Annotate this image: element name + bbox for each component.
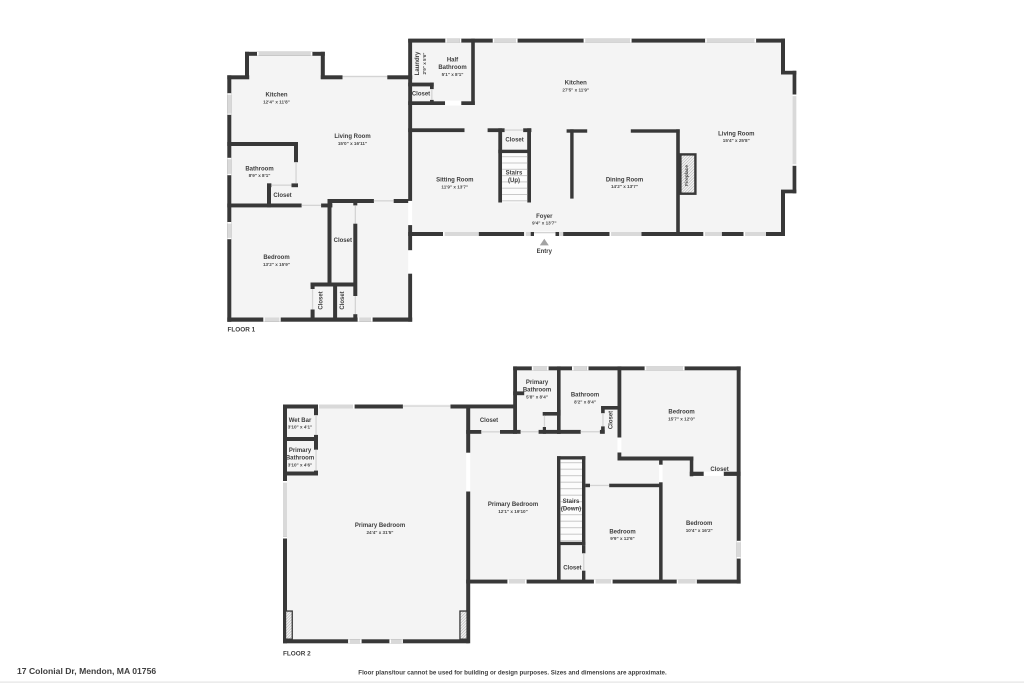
svg-text:Half: Half	[447, 58, 459, 64]
svg-text:Bedroom: Bedroom	[609, 530, 635, 536]
svg-text:5'1" x 8'1": 5'1" x 8'1"	[442, 72, 464, 77]
svg-text:2'9" x 5'6": 2'9" x 5'6"	[422, 53, 427, 75]
svg-text:Closet: Closet	[273, 193, 291, 199]
svg-text:Bedroom: Bedroom	[668, 410, 694, 416]
svg-text:Floor plans/tour cannot be use: Floor plans/tour cannot be used for buil…	[358, 670, 667, 677]
svg-text:Sitting Room: Sitting Room	[436, 178, 473, 184]
svg-text:Closet: Closet	[563, 566, 581, 572]
svg-text:(Up): (Up)	[508, 178, 520, 184]
svg-text:9'4" x 13'7": 9'4" x 13'7"	[532, 221, 556, 226]
svg-text:15'0" x 16'11": 15'0" x 16'11"	[338, 141, 367, 146]
svg-text:Closet: Closet	[340, 291, 346, 309]
svg-text:10'4" x 16'2": 10'4" x 16'2"	[686, 528, 713, 533]
svg-text:FLOOR 1: FLOOR 1	[228, 327, 256, 334]
svg-text:Living Room: Living Room	[334, 134, 370, 140]
svg-text:15'7" x 12'0": 15'7" x 12'0"	[668, 417, 695, 422]
svg-text:Primary: Primary	[289, 448, 312, 454]
svg-text:17 Colonial Dr, Mendon, MA 017: 17 Colonial Dr, Mendon, MA 01756	[17, 666, 156, 676]
svg-text:12'1" x 19'10": 12'1" x 19'10"	[498, 509, 528, 514]
svg-text:FLOOR 2: FLOOR 2	[283, 651, 311, 658]
svg-text:Bedroom: Bedroom	[263, 255, 289, 261]
svg-text:11'9" x 13'7": 11'9" x 13'7"	[441, 185, 468, 190]
svg-text:Closet: Closet	[505, 138, 523, 144]
svg-text:12'4" x 11'8": 12'4" x 11'8"	[263, 100, 290, 105]
svg-text:Closet: Closet	[609, 411, 615, 429]
svg-text:27'5" x 11'9": 27'5" x 11'9"	[562, 88, 589, 93]
svg-text:3'10" x 4'1": 3'10" x 4'1"	[288, 425, 312, 430]
svg-text:Primary Bedroom: Primary Bedroom	[488, 502, 538, 508]
svg-text:Living Room: Living Room	[718, 131, 754, 137]
svg-text:Entry: Entry	[537, 249, 553, 255]
svg-text:Wet Bar: Wet Bar	[289, 418, 312, 424]
svg-text:Bathroom: Bathroom	[571, 393, 599, 399]
svg-text:Closet: Closet	[710, 467, 728, 473]
svg-text:3'10" x 4'6": 3'10" x 4'6"	[288, 463, 312, 468]
svg-text:Bedroom: Bedroom	[686, 521, 712, 527]
svg-text:15'4" x 25'8": 15'4" x 25'8"	[723, 138, 750, 143]
svg-text:Primary: Primary	[526, 380, 549, 386]
svg-text:Stairs: Stairs	[563, 499, 580, 505]
svg-text:8'2" x 8'4": 8'2" x 8'4"	[574, 399, 596, 404]
svg-text:Kitchen: Kitchen	[565, 81, 587, 87]
svg-text:Bathroom: Bathroom	[286, 456, 314, 462]
svg-text:Bathroom: Bathroom	[438, 65, 466, 71]
svg-text:Fireplace: Fireplace	[684, 165, 690, 186]
svg-text:Dining Room: Dining Room	[606, 178, 643, 184]
svg-text:Kitchen: Kitchen	[265, 93, 287, 99]
svg-text:Bathroom: Bathroom	[245, 167, 273, 173]
svg-text:14'2" x 13'7": 14'2" x 13'7"	[611, 184, 638, 189]
svg-text:Closet: Closet	[412, 92, 430, 98]
svg-text:Closet: Closet	[334, 238, 352, 244]
svg-text:Foyer: Foyer	[536, 214, 553, 220]
svg-text:Closet: Closet	[480, 418, 498, 424]
svg-text:Bathroom: Bathroom	[523, 388, 551, 394]
svg-text:Closet: Closet	[319, 291, 325, 309]
svg-text:Primary Bedroom: Primary Bedroom	[355, 523, 405, 529]
svg-text:13'2" x 15'9": 13'2" x 15'9"	[263, 262, 290, 267]
svg-text:(Down): (Down)	[561, 507, 581, 513]
svg-text:24'4" x 31'5": 24'4" x 31'5"	[367, 530, 394, 535]
svg-text:8'9" x 8'1": 8'9" x 8'1"	[249, 173, 271, 178]
svg-text:5'8" x 8'4": 5'8" x 8'4"	[526, 395, 548, 400]
svg-text:Stairs: Stairs	[506, 171, 523, 177]
svg-text:9'9" x 12'6": 9'9" x 12'6"	[610, 536, 634, 541]
svg-text:Laundry: Laundry	[415, 51, 421, 75]
